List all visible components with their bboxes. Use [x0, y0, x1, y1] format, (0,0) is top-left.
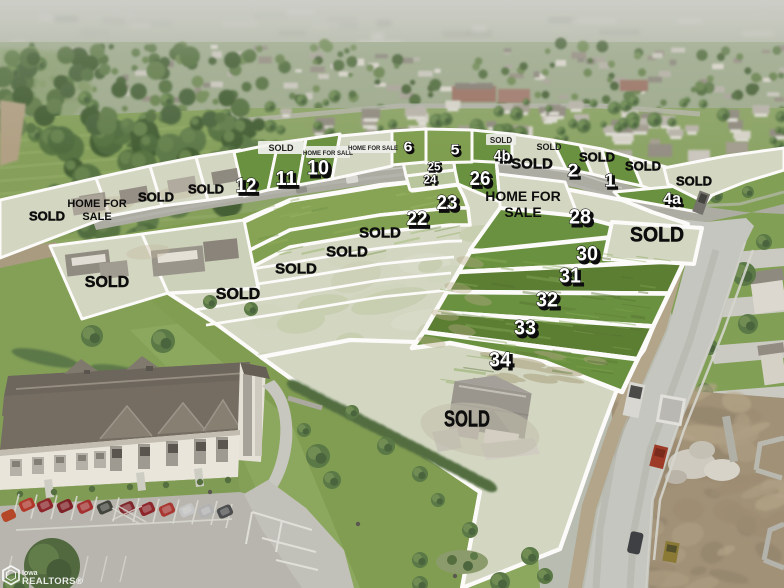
svg-text:SOLD: SOLD: [29, 209, 65, 224]
svg-text:11: 11: [276, 168, 297, 190]
svg-text:33: 33: [514, 317, 536, 340]
svg-text:22: 22: [407, 208, 428, 230]
svg-text:SOLD: SOLD: [359, 224, 401, 241]
svg-text:24: 24: [424, 172, 437, 186]
svg-text:31: 31: [559, 265, 581, 288]
svg-text:SOLD: SOLD: [630, 224, 684, 247]
svg-text:SOLD: SOLD: [138, 190, 174, 205]
svg-text:HOME FOR: HOME FOR: [67, 198, 126, 210]
svg-text:SOLD: SOLD: [676, 174, 712, 189]
svg-text:SALE: SALE: [82, 211, 111, 223]
svg-text:SOLD: SOLD: [511, 155, 553, 172]
svg-text:SOLD: SOLD: [216, 286, 260, 303]
svg-text:1: 1: [605, 171, 616, 191]
svg-text:32: 32: [536, 289, 558, 312]
svg-text:25: 25: [428, 159, 441, 173]
svg-text:4b: 4b: [494, 148, 511, 165]
svg-text:30: 30: [576, 243, 598, 266]
svg-text:23: 23: [437, 192, 458, 214]
svg-text:SALE: SALE: [504, 204, 541, 220]
svg-text:10: 10: [307, 157, 329, 180]
svg-text:HOME FOR: HOME FOR: [485, 188, 560, 204]
svg-text:SOLD: SOLD: [188, 182, 224, 197]
svg-text:34: 34: [489, 349, 511, 372]
svg-text:SOLD: SOLD: [275, 260, 317, 277]
svg-text:SOLD: SOLD: [579, 150, 615, 165]
svg-text:SOLD: SOLD: [444, 405, 490, 431]
svg-text:28: 28: [569, 206, 591, 229]
svg-text:SOLD: SOLD: [85, 274, 129, 291]
svg-text:REALTORS®: REALTORS®: [22, 576, 83, 587]
svg-text:4a: 4a: [663, 189, 682, 208]
svg-text:12: 12: [236, 175, 257, 197]
svg-text:SOLD: SOLD: [326, 243, 368, 260]
svg-text:SOLD: SOLD: [625, 159, 661, 174]
svg-text:2: 2: [568, 161, 579, 181]
svg-text:26: 26: [470, 168, 491, 190]
